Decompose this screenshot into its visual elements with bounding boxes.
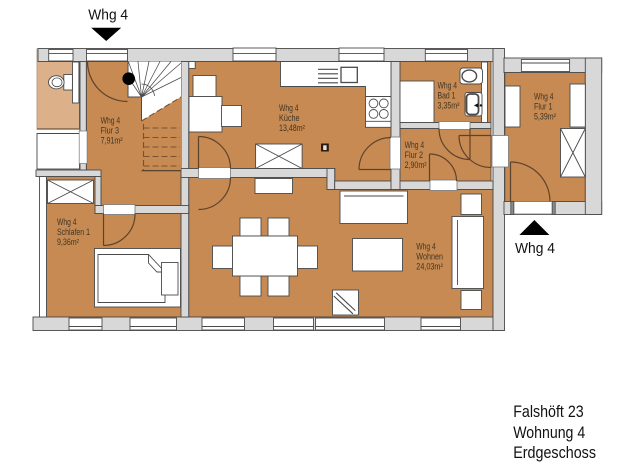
svg-text:Whg 4: Whg 4 bbox=[438, 81, 458, 91]
svg-text:Erdgeschoss: Erdgeschoss bbox=[513, 443, 596, 462]
svg-text:Whg 4: Whg 4 bbox=[534, 91, 554, 101]
svg-text:Flur 2: Flur 2 bbox=[405, 150, 424, 160]
svg-text:Schlafen 1: Schlafen 1 bbox=[57, 227, 90, 237]
svg-text:2,90m²: 2,90m² bbox=[405, 160, 427, 170]
svg-text:Flur 3: Flur 3 bbox=[101, 126, 120, 136]
svg-text:Flur 1: Flur 1 bbox=[534, 101, 553, 111]
svg-text:5,39m²: 5,39m² bbox=[534, 111, 556, 121]
svg-text:Wohnung 4: Wohnung 4 bbox=[513, 423, 585, 442]
svg-text:Whg 4: Whg 4 bbox=[88, 7, 128, 24]
svg-text:Whg 4: Whg 4 bbox=[279, 103, 299, 113]
svg-text:Whg 4: Whg 4 bbox=[416, 241, 436, 251]
svg-text:Whg 4: Whg 4 bbox=[515, 240, 555, 257]
svg-text:Whg 4: Whg 4 bbox=[101, 116, 121, 126]
svg-text:Wohnen: Wohnen bbox=[416, 251, 443, 261]
svg-text:Bad 1: Bad 1 bbox=[438, 91, 456, 101]
svg-text:3,35m²: 3,35m² bbox=[438, 101, 460, 111]
svg-text:Falshöft 23: Falshöft 23 bbox=[513, 402, 584, 421]
svg-text:9,36m²: 9,36m² bbox=[57, 237, 79, 247]
svg-text:24,03m²: 24,03m² bbox=[416, 261, 443, 271]
svg-text:Küche: Küche bbox=[279, 113, 300, 123]
svg-text:13,48m²: 13,48m² bbox=[279, 123, 305, 133]
svg-text:Whg 4: Whg 4 bbox=[405, 140, 425, 150]
svg-text:Whg 4: Whg 4 bbox=[57, 217, 77, 227]
svg-text:7,91m²: 7,91m² bbox=[101, 136, 123, 146]
